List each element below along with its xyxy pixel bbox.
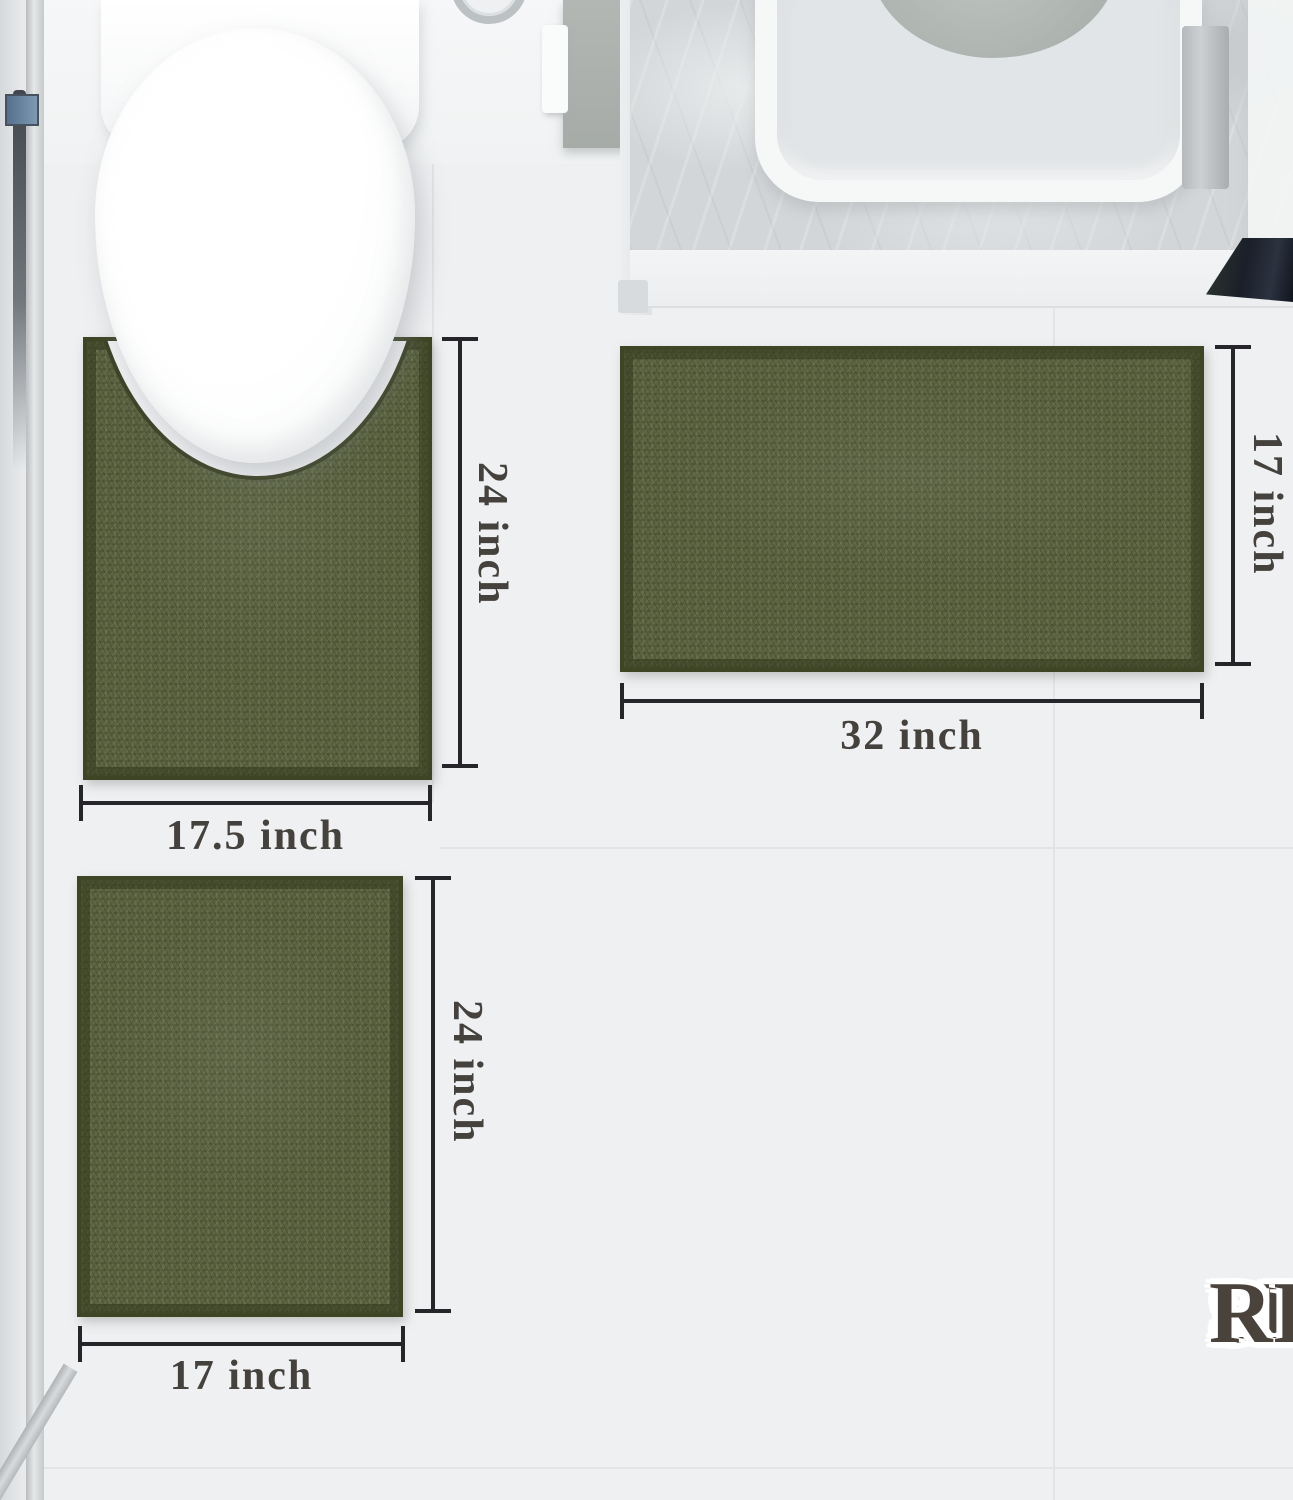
sink-basin [755,0,1202,202]
contour-rug-height-label: 24 inch [468,462,516,606]
large-rug-width-label: 32 inch [620,712,1204,760]
bath-rug-small [77,876,403,1317]
large-rug-height-dimension-line [1231,345,1235,666]
faucet [1182,26,1229,189]
contour-rug-width-label: 17.5 inch [79,812,432,860]
size-reference-title-line2: REFERENCE [1209,1266,1293,1363]
small-rug-height-dimension-line [431,876,435,1313]
bath-rug-large [620,346,1204,672]
shower-door-hinge [5,94,39,126]
small-rug-width-label: 17 inch [78,1352,405,1400]
shower-door-handle [13,90,26,470]
small-rug-height-label: 24 inch [443,1000,491,1144]
vanity-foot [618,280,648,313]
large-rug-height-label: 17 inch [1243,432,1291,576]
contour-rug-width-dimension-line [79,801,432,805]
tile-grout-line [440,847,1293,849]
toilet-supply-box [542,25,568,113]
contour-rug-height-dimension-line [458,337,462,768]
large-rug-width-dimension-line [620,699,1204,703]
wall-strip [1248,0,1293,250]
size-reference-image: 24 inch 17.5 inch 17 inch 32 inch 24 inc… [0,0,1293,1500]
sink-basin-bowl [777,0,1180,180]
baseboard [630,250,1293,308]
sink-drain-area [869,0,1119,58]
small-rug-width-dimension-line [78,1342,405,1346]
shower-glass-frame [26,0,44,1500]
tile-grout-line [432,163,434,803]
tile-grout-line [0,1467,1293,1469]
